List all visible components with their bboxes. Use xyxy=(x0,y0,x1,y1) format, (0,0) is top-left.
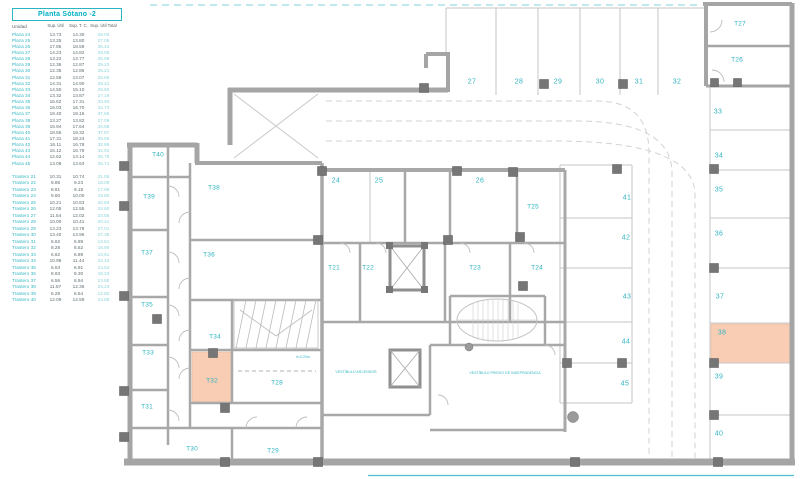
sup-total-value: 32.89 xyxy=(90,142,117,147)
room-label: T35 xyxy=(141,302,153,309)
sup-util-value: 6.62 xyxy=(44,252,67,257)
table-row: Trastero 24 9.60 10.00 19.60 xyxy=(12,193,122,200)
table-row: Trastero 37 6.56 6.94 13.50 xyxy=(12,277,122,284)
sup-total-value: 13.54 xyxy=(90,265,117,270)
sup-util-value: 10.98 xyxy=(44,258,67,263)
sup-total-value: 22.42 xyxy=(90,258,117,263)
sup-util-value: 8.93 xyxy=(44,271,67,276)
sup-util-value: 14.23 xyxy=(44,50,67,55)
sup-util-value: 12.05 xyxy=(44,206,67,211)
parking-space-label: 28 xyxy=(515,79,523,86)
sup-tc-value: 15.10 xyxy=(67,87,90,92)
sup-util-value: 13.40 xyxy=(44,232,67,237)
room-label: T25 xyxy=(527,204,539,211)
room-label: T23 xyxy=(469,265,481,272)
parking-space-label: 40 xyxy=(715,431,723,438)
unit-name: Trastero 35 xyxy=(12,265,44,270)
unit-name: Plaza 33 xyxy=(12,87,44,92)
parking-space-label: 41 xyxy=(623,195,631,202)
unit-name: Plaza 38 xyxy=(12,118,44,123)
sup-util-value: 16.94 xyxy=(44,124,67,129)
sup-util-value: 12.58 xyxy=(44,75,67,80)
sup-total-value: 24.60 xyxy=(90,206,117,211)
sup-util-value: 12.36 xyxy=(44,62,67,67)
sup-tc-value: 14.30 xyxy=(67,32,90,37)
table-row: Trastero 29 13.23 13.78 27.01 xyxy=(12,225,122,232)
room-label: T24 xyxy=(531,265,543,272)
sup-total-value: 13.51 xyxy=(90,239,117,244)
table-row: Trastero 31 6.62 6.89 13.51 xyxy=(12,238,122,245)
sup-total-value: 29.21 xyxy=(90,81,117,86)
table-row: Trastero 30 13.40 13.96 27.36 xyxy=(12,232,122,239)
sup-util-value: 16.03 xyxy=(44,105,67,110)
sup-total-value: 32.73 xyxy=(90,105,117,110)
table-row: Plaza 44 12.62 13.14 25.76 xyxy=(12,154,122,160)
sup-tc-value: 12.36 xyxy=(67,284,90,289)
unit-name: Trastero 37 xyxy=(12,278,44,283)
trastero-rows: Trastero 21 10.31 10.74 21.05 Trastero 2… xyxy=(12,173,122,303)
sup-total-value: 18.23 xyxy=(90,271,117,276)
room-label: T26 xyxy=(731,57,743,64)
room-label: T37 xyxy=(141,250,153,257)
unit-name: Trastero 32 xyxy=(12,245,44,250)
sup-tc-value: 6.94 xyxy=(67,278,90,283)
sup-tc-value: 16.70 xyxy=(67,105,90,110)
sup-tc-value: 12.87 xyxy=(67,62,90,67)
sup-tc-value: 13.14 xyxy=(67,154,90,159)
unit-name: Plaza 32 xyxy=(12,81,44,86)
table-row: Plaza 41 17.31 18.24 35.55 xyxy=(12,135,122,141)
table-title: Planta Sótano -2 xyxy=(12,8,122,21)
sup-total-value: 34.58 xyxy=(90,124,117,129)
unit-name: Trastero 24 xyxy=(12,193,44,198)
table-row: Trastero 36 8.93 9.30 18.23 xyxy=(12,271,122,278)
plan-annotation: h<2.20m xyxy=(296,355,310,359)
sup-util-value: 6.28 xyxy=(44,291,67,296)
room-label: T36 xyxy=(203,252,215,259)
sup-util-value: 13.25 xyxy=(44,38,67,43)
sup-tc-value: 6.91 xyxy=(67,265,90,270)
sup-tc-value: 12.02 xyxy=(67,213,90,218)
unit-name: Trastero 30 xyxy=(12,232,44,237)
sup-tc-value: 12.55 xyxy=(67,206,90,211)
sup-total-value: 27.19 xyxy=(90,93,117,98)
unit-name: Trastero 26 xyxy=(12,206,44,211)
table-row: Plaza 31 12.58 13.07 25.65 xyxy=(12,74,122,80)
table-row: Trastero 21 10.31 10.74 21.05 xyxy=(12,173,122,180)
sup-tc-value: 13.80 xyxy=(67,38,90,43)
table-row: Plaza 38 13.27 13.82 27.09 xyxy=(12,117,122,123)
sup-util-value: 13.23 xyxy=(44,226,67,231)
table-group-gap xyxy=(12,166,122,173)
ramp-cross xyxy=(234,94,318,158)
sup-tc-value: 18.24 xyxy=(67,136,90,141)
sup-total-value: 25.23 xyxy=(90,62,117,67)
sup-tc-value: 8.62 xyxy=(67,245,90,250)
table-row: Trastero 39 6.28 6.54 12.82 xyxy=(12,290,122,297)
sup-util-value: 13.73 xyxy=(44,32,67,37)
unit-name: Plaza 29 xyxy=(12,62,44,67)
sup-util-value: 16.12 xyxy=(44,148,67,153)
sup-util-value: 17.85 xyxy=(44,44,67,49)
interior-walls xyxy=(130,145,565,461)
unit-name: Plaza 30 xyxy=(12,68,44,73)
unit-name: Plaza 42 xyxy=(12,142,44,147)
sup-tc-value: 16.78 xyxy=(67,142,90,147)
room-label: T39 xyxy=(143,194,155,201)
parking-space-label: 43 xyxy=(623,294,631,301)
room-label: T28 xyxy=(271,380,283,387)
sup-util-value: 16.62 xyxy=(44,99,67,104)
sup-tc-value: 13.78 xyxy=(67,226,90,231)
sup-total-value: 27.09 xyxy=(90,118,117,123)
unit-name: Plaza 27 xyxy=(12,50,44,55)
sup-util-value: 10.31 xyxy=(44,174,67,179)
sup-total-value: 25.21 xyxy=(90,68,117,73)
sup-total-value: 24.68 xyxy=(90,297,117,302)
sup-tc-value: 13.87 xyxy=(67,93,90,98)
sup-total-value: 37.87 xyxy=(90,130,117,135)
sup-tc-value: 19.16 xyxy=(67,111,90,116)
sup-tc-value: 13.77 xyxy=(67,56,90,61)
room-label: T22 xyxy=(362,265,374,272)
unit-name: Plaza 31 xyxy=(12,75,44,80)
sup-total-value: 29.05 xyxy=(90,50,117,55)
table-row: Plaza 43 16.12 16.79 32.91 xyxy=(12,148,122,154)
plan-annotation: VESTÍBULO ASCENSOR xyxy=(335,370,376,374)
unit-name: Plaza 24 xyxy=(12,32,44,37)
sup-total-value: 13.51 xyxy=(90,252,117,257)
sup-total-value: 27.05 xyxy=(90,38,117,43)
sup-tc-value: 9.23 xyxy=(67,180,90,185)
sup-util-value: 11.54 xyxy=(44,213,67,218)
sup-tc-value: 14.82 xyxy=(67,50,90,55)
table-row: Trastero 26 12.05 12.55 24.60 xyxy=(12,206,122,213)
unit-name: Trastero 33 xyxy=(12,252,44,257)
floor-plan-sheet: 2425262728293031323334353637383940414243… xyxy=(0,0,800,479)
sup-tc-value: 6.54 xyxy=(67,291,90,296)
unit-name: Trastero 40 xyxy=(12,297,44,302)
sup-util-value: 9.60 xyxy=(44,193,67,198)
sup-tc-value: 6.89 xyxy=(67,252,90,257)
units-table: Planta Sótano -2 Unidad Sup. Útil Sup. T… xyxy=(12,8,122,303)
sup-tc-value: 10.00 xyxy=(67,193,90,198)
sup-util-value: 18.40 xyxy=(44,111,67,116)
parking-space-label: 29 xyxy=(554,79,562,86)
sup-tc-value: 12.86 xyxy=(67,68,90,73)
sup-tc-value: 16.79 xyxy=(67,148,90,153)
sup-total-value: 25.76 xyxy=(90,154,117,159)
parking-space-label: 31 xyxy=(635,79,643,86)
table-row: Plaza 30 12.35 12.86 25.21 xyxy=(12,68,122,74)
sup-tc-value: 17.31 xyxy=(67,99,90,104)
sup-total-value: 27.36 xyxy=(90,232,117,237)
sup-util-value: 12.35 xyxy=(44,68,67,73)
sup-total-value: 27.01 xyxy=(90,226,117,231)
sup-util-value: 10.21 xyxy=(44,200,67,205)
sup-util-value: 12.09 xyxy=(44,297,67,302)
col-unidad: Unidad xyxy=(12,24,44,29)
unit-name: Trastero 34 xyxy=(12,258,44,263)
table-row: Plaza 33 14.50 15.10 29.60 xyxy=(12,86,122,92)
unit-name: Plaza 37 xyxy=(12,111,44,116)
table-row: Plaza 28 13.22 13.77 26.99 xyxy=(12,56,122,62)
sup-tc-value: 10.41 xyxy=(67,219,90,224)
parking-space-label: 38 xyxy=(718,330,726,337)
table-row: Trastero 22 8.86 9.23 18.09 xyxy=(12,180,122,187)
elevator-1-icon xyxy=(386,242,428,293)
unit-name: Plaza 35 xyxy=(12,99,44,104)
sup-util-value: 13.22 xyxy=(44,56,67,61)
room-label: T29 xyxy=(267,448,279,455)
table-row: Trastero 33 6.62 6.89 13.51 xyxy=(12,251,122,258)
sup-total-value: 36.44 xyxy=(90,44,117,49)
stair-ramp-hatch xyxy=(234,300,318,348)
sup-tc-value: 17.64 xyxy=(67,124,90,129)
table-row: Plaza 26 17.85 18.59 36.44 xyxy=(12,43,122,49)
sup-total-value: 25.65 xyxy=(90,75,117,80)
sup-util-value: 6.62 xyxy=(44,239,67,244)
parking-space-label: 35 xyxy=(715,187,723,194)
unit-name: Plaza 45 xyxy=(12,161,44,166)
room-label: T33 xyxy=(142,350,154,357)
table-row: Plaza 39 16.94 17.64 34.58 xyxy=(12,123,122,129)
sup-total-value: 12.82 xyxy=(90,291,117,296)
parking-space-label: 44 xyxy=(622,339,630,346)
sup-total-value: 26.71 xyxy=(90,161,117,166)
unit-name: Plaza 26 xyxy=(12,44,44,49)
table-row: Trastero 23 8.81 9.18 17.99 xyxy=(12,186,122,193)
room-label: T30 xyxy=(186,446,198,453)
sup-tc-value: 14.90 xyxy=(67,81,90,86)
plan-annotation: VESTÍBULO PREVIO DE INDEPENDENCIA xyxy=(469,371,540,375)
sup-total-value: 29.60 xyxy=(90,87,117,92)
sup-total-value: 24.23 xyxy=(90,284,117,289)
unit-name: Trastero 36 xyxy=(12,271,44,276)
sup-util-value: 8.28 xyxy=(44,245,67,250)
col-sup-tc: Sup. T. C. xyxy=(67,24,90,29)
sup-util-value: 8.86 xyxy=(44,180,67,185)
table-row: Plaza 24 13.73 14.30 28.03 xyxy=(12,31,122,37)
room-label: T27 xyxy=(734,21,746,28)
parking-space-label: 32 xyxy=(673,79,681,86)
sup-total-value: 33.93 xyxy=(90,99,117,104)
sup-util-value: 13.08 xyxy=(44,161,67,166)
sup-tc-value: 9.30 xyxy=(67,271,90,276)
parking-space-label: 45 xyxy=(621,381,629,388)
unit-name: Plaza 28 xyxy=(12,56,44,61)
elevator-2-icon xyxy=(390,350,420,387)
sup-total-value: 18.09 xyxy=(90,180,117,185)
parking-dividers xyxy=(370,8,792,461)
sup-tc-value: 13.96 xyxy=(67,232,90,237)
sup-util-value: 10.00 xyxy=(44,219,67,224)
unit-name: Plaza 36 xyxy=(12,105,44,110)
sup-total-value: 26.99 xyxy=(90,56,117,61)
sup-total-value: 32.91 xyxy=(90,148,117,153)
sup-tc-value: 13.07 xyxy=(67,75,90,80)
room-label: T34 xyxy=(209,334,221,341)
room-label: T21 xyxy=(328,265,340,272)
parking-space-label: 36 xyxy=(715,231,723,238)
sup-total-value: 28.03 xyxy=(90,32,117,37)
sup-util-value: 6.56 xyxy=(44,278,67,283)
unit-name: Trastero 22 xyxy=(12,180,44,185)
unit-name: Plaza 43 xyxy=(12,148,44,153)
sup-tc-value: 18.59 xyxy=(67,44,90,49)
sup-total-value: 35.55 xyxy=(90,136,117,141)
highlighted-units[interactable] xyxy=(192,324,792,402)
table-row: Plaza 34 13.32 13.87 27.19 xyxy=(12,92,122,98)
plaza-rows: Plaza 24 13.73 14.30 28.03 Plaza 25 13.2… xyxy=(12,31,122,166)
sup-util-value: 11.87 xyxy=(44,284,67,289)
unit-name: Trastero 29 xyxy=(12,226,44,231)
table-row: Plaza 36 16.03 16.70 32.73 xyxy=(12,105,122,111)
sup-util-value: 6.63 xyxy=(44,265,67,270)
room-label: T31 xyxy=(141,404,153,411)
unit-name: Trastero 25 xyxy=(12,200,44,205)
table-row: Plaza 37 18.40 19.16 37.56 xyxy=(12,111,122,117)
sup-total-value: 16.90 xyxy=(90,245,117,250)
sup-total-value: 37.56 xyxy=(90,111,117,116)
parking-space-label: 37 xyxy=(716,294,724,301)
table-row: Trastero 27 11.54 12.02 23.56 xyxy=(12,212,122,219)
unit-name: Plaza 41 xyxy=(12,136,44,141)
sup-total-value: 19.60 xyxy=(90,193,117,198)
sup-total-value: 20.84 xyxy=(90,200,117,205)
table-row: Plaza 42 16.11 16.78 32.89 xyxy=(12,142,122,148)
table-row: Trastero 25 10.21 10.63 20.84 xyxy=(12,199,122,206)
parking-space-label: 34 xyxy=(715,153,723,160)
unit-name: Trastero 31 xyxy=(12,239,44,244)
sup-tc-value: 12.59 xyxy=(67,297,90,302)
sup-util-value: 12.62 xyxy=(44,154,67,159)
sup-tc-value: 6.89 xyxy=(67,239,90,244)
table-row: Plaza 27 14.23 14.82 29.05 xyxy=(12,49,122,55)
sup-total-value: 20.41 xyxy=(90,219,117,224)
room-label: T40 xyxy=(152,152,164,159)
sup-tc-value: 9.18 xyxy=(67,187,90,192)
room-label: T38 xyxy=(208,185,220,192)
stair-oval xyxy=(457,299,537,342)
unit-name: Trastero 38 xyxy=(12,284,44,289)
col-sup-util-total: Sup. Útil Total xyxy=(90,24,117,29)
table-row: Trastero 34 10.98 11.44 22.42 xyxy=(12,258,122,265)
sup-util-value: 13.27 xyxy=(44,118,67,123)
sup-util-value: 18.55 xyxy=(44,130,67,135)
unit-name: Trastero 28 xyxy=(12,219,44,224)
sup-util-value: 14.31 xyxy=(44,81,67,86)
sup-total-value: 23.56 xyxy=(90,213,117,218)
sup-tc-value: 13.63 xyxy=(67,161,90,166)
table-row: Trastero 40 12.09 12.59 24.68 xyxy=(12,297,122,304)
table-row: Trastero 38 11.87 12.36 24.23 xyxy=(12,284,122,291)
sup-util-value: 16.11 xyxy=(44,142,67,147)
unit-name: Plaza 44 xyxy=(12,154,44,159)
sup-tc-value: 11.44 xyxy=(67,258,90,263)
table-header: Unidad Sup. Útil Sup. T. C. Sup. Útil To… xyxy=(12,24,122,29)
parking-space-label: 33 xyxy=(714,109,722,116)
table-row: Trastero 35 6.63 6.91 13.54 xyxy=(12,264,122,271)
col-sup-util: Sup. Útil xyxy=(44,24,67,29)
sup-total-value: 21.05 xyxy=(90,174,117,179)
sup-util-value: 17.31 xyxy=(44,136,67,141)
unit-name: Trastero 23 xyxy=(12,187,44,192)
table-row: Plaza 25 13.25 13.80 27.05 xyxy=(12,37,122,43)
table-row: Trastero 28 10.00 10.41 20.41 xyxy=(12,219,122,226)
sup-tc-value: 10.63 xyxy=(67,200,90,205)
table-row: Plaza 32 14.31 14.90 29.21 xyxy=(12,80,122,86)
parking-space-label: 25 xyxy=(375,178,383,185)
table-row: Plaza 40 18.55 19.32 37.87 xyxy=(12,129,122,135)
table-row: Plaza 35 16.62 17.31 33.93 xyxy=(12,99,122,105)
sup-util-value: 14.50 xyxy=(44,87,67,92)
unit-name: Trastero 39 xyxy=(12,291,44,296)
table-row: Plaza 29 12.36 12.87 25.23 xyxy=(12,62,122,68)
parking-space-label: 26 xyxy=(476,178,484,185)
unit-name: Plaza 34 xyxy=(12,93,44,98)
sup-total-value: 13.50 xyxy=(90,278,117,283)
unit-name: Trastero 27 xyxy=(12,213,44,218)
sup-util-value: 13.32 xyxy=(44,93,67,98)
unit-name: Plaza 40 xyxy=(12,130,44,135)
room-label: T32 xyxy=(206,378,218,385)
sup-tc-value: 19.32 xyxy=(67,130,90,135)
parking-space-label: 24 xyxy=(332,178,340,185)
parking-space-label: 42 xyxy=(622,235,630,242)
table-row: Trastero 32 8.28 8.62 16.90 xyxy=(12,245,122,252)
sup-tc-value: 10.74 xyxy=(67,174,90,179)
sup-tc-value: 13.82 xyxy=(67,118,90,123)
unit-name: Plaza 25 xyxy=(12,38,44,43)
unit-name: Plaza 39 xyxy=(12,124,44,129)
parking-space-label: 39 xyxy=(715,374,723,381)
sup-total-value: 17.99 xyxy=(90,187,117,192)
parking-space-label: 30 xyxy=(596,79,604,86)
unit-name: Trastero 21 xyxy=(12,174,44,179)
table-row: Plaza 45 13.08 13.63 26.71 xyxy=(12,160,122,166)
sup-util-value: 8.81 xyxy=(44,187,67,192)
parking-space-label: 27 xyxy=(468,79,476,86)
